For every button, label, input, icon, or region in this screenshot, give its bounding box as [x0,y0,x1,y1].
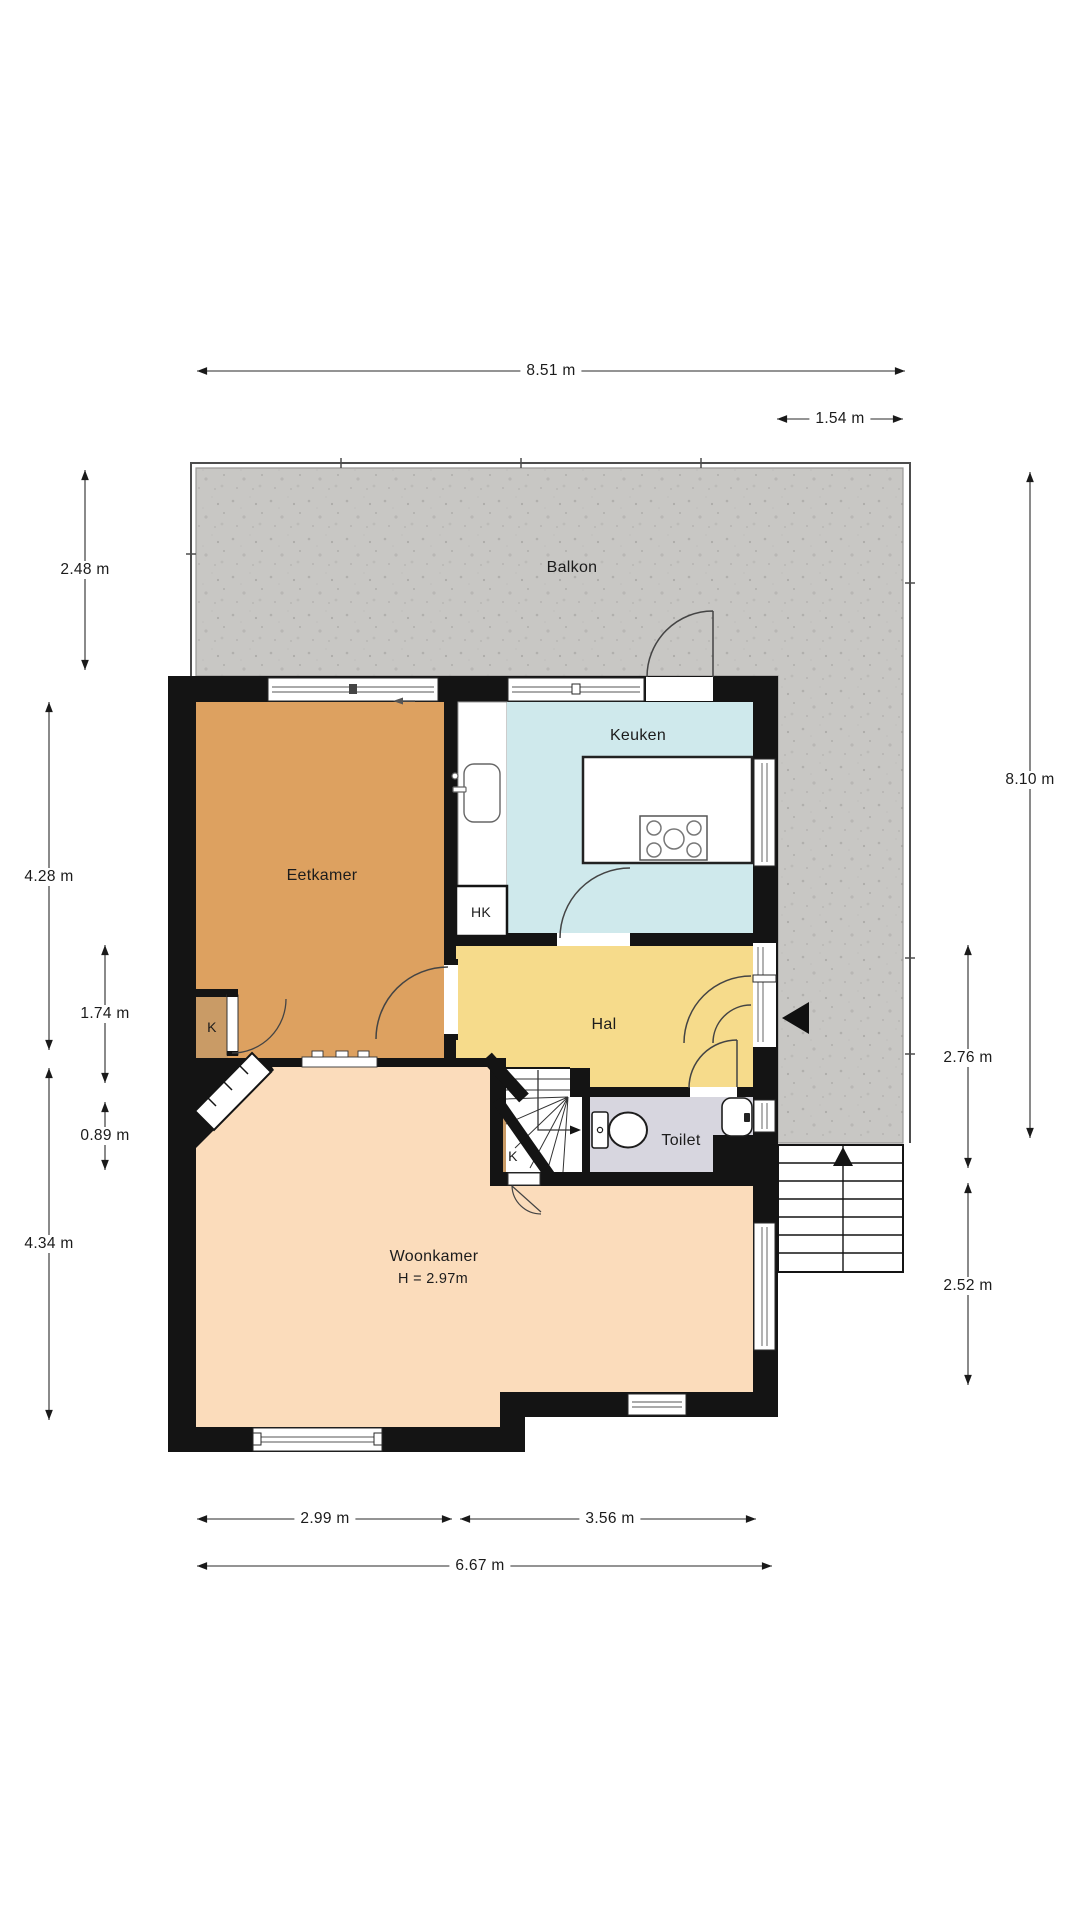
dimension-left-toilet: 0.89 m [74,1127,135,1145]
dimension-right-entry: 2.76 m [937,1049,998,1067]
dimension-right-stairs: 2.52 m [937,1277,998,1295]
dimension-left-balkon: 2.48 m [54,561,115,579]
dimension-bottom-total: 6.67 m [449,1557,510,1575]
closet-label-k-eetkamer: K [207,1019,217,1035]
dimension-bottom-right: 3.56 m [579,1510,640,1528]
room-label-eetkamer: Eetkamer [287,867,358,885]
dimension-left-woonkamer: 4.34 m [18,1235,79,1253]
dimension-right-total: 8.10 m [999,771,1060,789]
room-label-woonkamer: Woonkamer [390,1248,479,1266]
kitchen-island [583,757,752,863]
dimension-top-total: 8.51 m [520,362,581,380]
room-height-note: H = 2.97m [398,1271,468,1287]
room-label-hal: Hal [592,1016,617,1034]
stove-icon [640,816,707,860]
dimension-left-eetkamer: 4.28 m [18,868,79,886]
room-label-balkon: Balkon [547,559,598,577]
toilet-bowl-icon [592,1112,647,1148]
room-label-toilet: Toilet [661,1132,700,1150]
room-label-keuken: Keuken [610,727,666,745]
exterior-staircase [778,1145,903,1272]
closet-label-k-stairs: K [508,1148,518,1164]
floorplan-page: Balkon Keuken Eetkamer Hal Toilet Woonka… [0,0,1080,1920]
washbasin-icon [722,1098,752,1136]
dimension-left-hal: 1.74 m [74,1005,135,1023]
dimension-bottom-left: 2.99 m [294,1510,355,1528]
closet-label-hk: HK [471,904,491,920]
dimension-top-right: 1.54 m [809,410,870,428]
floorplan-drawing [0,0,1080,1920]
